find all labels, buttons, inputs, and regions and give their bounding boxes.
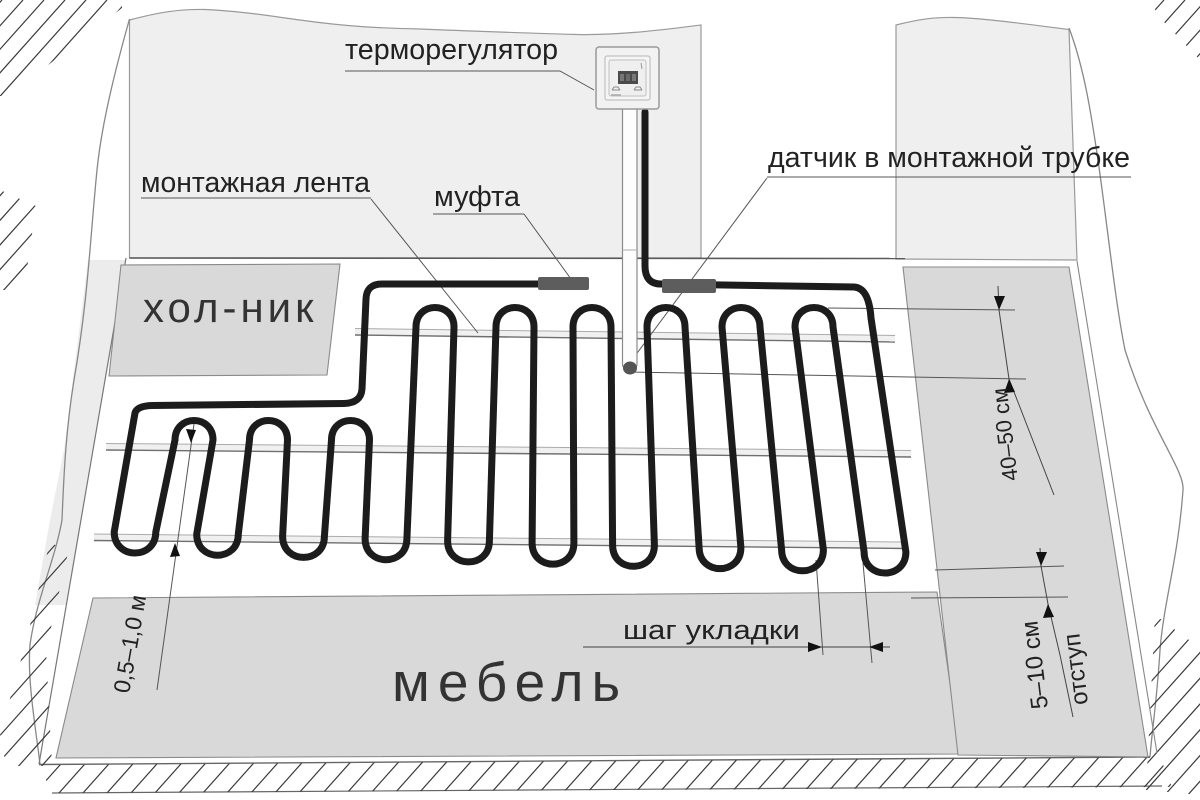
svg-text:терморегулятор: терморегулятор [345, 34, 558, 66]
svg-text:монтажная лента: монтажная лента [141, 167, 371, 199]
svg-text:хол-ник: хол-ник [143, 284, 318, 331]
svg-text:мебель: мебель [392, 651, 628, 713]
svg-text:шаг укладки: шаг укладки [623, 615, 800, 645]
svg-text:муфта: муфта [434, 181, 521, 213]
svg-text:датчик в монтажной трубке: датчик в монтажной трубке [768, 142, 1130, 174]
